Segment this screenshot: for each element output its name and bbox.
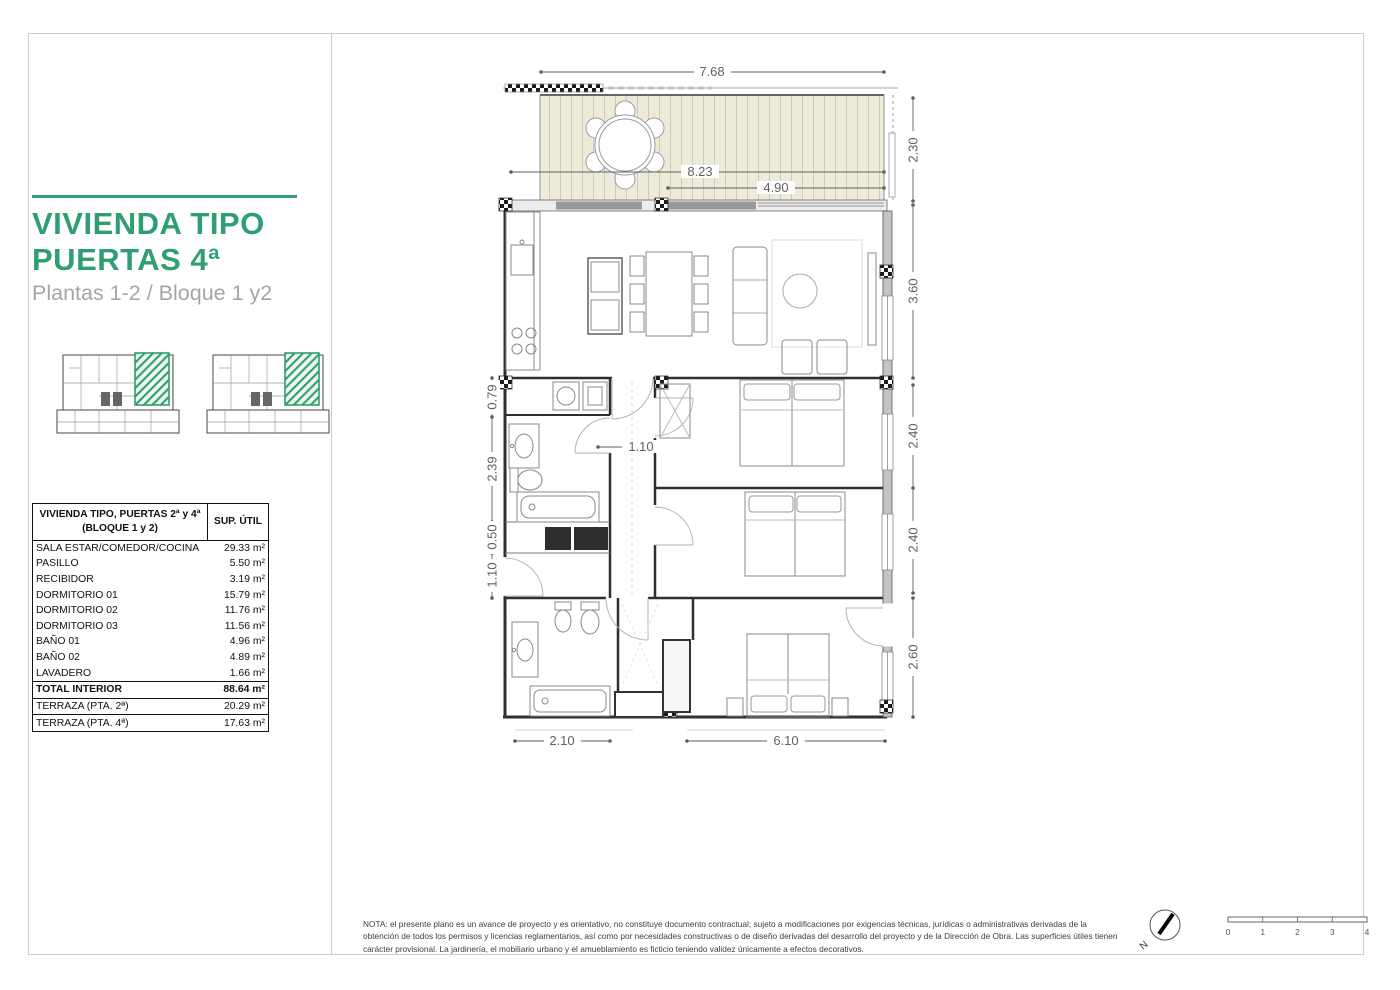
table-row: LAVADERO1.66 m² [33, 665, 268, 681]
table-header-sup-util: SUP. ÚTIL [208, 504, 268, 540]
dim-hallway: 1.10 [596, 439, 658, 454]
key-plan-block-1 [57, 353, 179, 433]
scale-tick: 0 [1226, 927, 1231, 937]
dim-label: 2.39 [485, 456, 500, 481]
scale-tick: 3 [1330, 927, 1335, 937]
room-area: 29.33 m² [201, 543, 268, 554]
room-area: 4.96 m² [201, 636, 268, 647]
table-header-title: VIVIENDA TIPO, PUERTAS 2ª y 4ª (BLOQUE 1… [33, 504, 208, 540]
room-area: 15.79 m² [201, 590, 268, 601]
laundry-appliances [553, 382, 607, 410]
total-label: TOTAL INTERIOR [33, 684, 201, 695]
page-title: VIVIENDA TIPO PUERTAS 4ª [32, 206, 322, 279]
dim-label: 2.10 [549, 733, 574, 748]
table-header: VIVIENDA TIPO, PUERTAS 2ª y 4ª (BLOQUE 1… [33, 504, 268, 541]
kitchen-furniture [506, 212, 622, 370]
legal-note: NOTA: el presente plano es un avance de … [363, 918, 1121, 955]
dim-label: 4.90 [763, 180, 788, 195]
table-row: PASILLO5.50 m² [33, 556, 268, 572]
eave-lines [503, 84, 898, 92]
dim-label: 0.50 [485, 524, 500, 549]
sidebar-divider [331, 33, 332, 955]
room-label: DORMITORIO 03 [33, 621, 201, 632]
bedroom02-furniture [660, 380, 844, 466]
key-plan-icon [55, 348, 335, 448]
scale-tick: 1 [1260, 927, 1265, 937]
room-label: BAÑO 01 [33, 636, 201, 647]
title-line-1: VIVIENDA TIPO [32, 206, 322, 242]
room-area: 3.19 m² [201, 574, 268, 585]
table-row-terraza-4: TERRAZA (PTA. 4ª)17.63 m² [33, 714, 268, 731]
surfaces-table: VIVIENDA TIPO, PUERTAS 2ª y 4ª (BLOQUE 1… [32, 503, 269, 732]
table-row-terraza-2: TERRAZA (PTA. 2ª)20.29 m² [33, 699, 268, 715]
room-area: 11.56 m² [201, 621, 268, 632]
terrace [540, 95, 895, 201]
scale-tick: 4 [1365, 927, 1370, 937]
table-header-line1: VIVIENDA TIPO, PUERTAS 2ª y 4ª [35, 508, 205, 522]
room-label: BAÑO 02 [33, 652, 201, 663]
dressing-closets [615, 604, 690, 717]
dim-label: 2.30 [906, 137, 921, 162]
right-facade [882, 211, 893, 717]
room-label: PASILLO [33, 558, 201, 569]
dim-label: 6.10 [773, 733, 798, 748]
table-row-total: TOTAL INTERIOR88.64 m² [33, 681, 268, 699]
terrace-label: TERRAZA (PTA. 2ª) [33, 701, 201, 712]
plan-sheet: VIVIENDA TIPO PUERTAS 4ª Plantas 1-2 / B… [0, 0, 1400, 990]
bathroom1-fixtures [509, 424, 608, 550]
dim-label: 7.68 [699, 64, 724, 79]
accent-rule [32, 195, 297, 198]
dim-top: 7.68 [539, 64, 886, 79]
room-label: DORMITORIO 01 [33, 590, 201, 601]
dim-label: 1.10 [628, 439, 653, 454]
total-area: 88.64 m² [201, 684, 268, 695]
window-band-top [503, 200, 887, 211]
bedroom01-furniture [727, 634, 848, 717]
room-area: 1.66 m² [201, 668, 268, 679]
key-plan-block-2 [207, 353, 329, 433]
terrace-area: 20.29 m² [201, 701, 268, 712]
table-row: SALA ESTAR/COMEDOR/COCINA29.33 m² [33, 541, 268, 557]
dim-label: 2.40 [906, 527, 921, 552]
room-label: RECIBIDOR [33, 574, 201, 585]
table-row: DORMITORIO 0115.79 m² [33, 587, 268, 603]
table-row: BAÑO 014.96 m² [33, 634, 268, 650]
scale-bar: 0 1 2 3 4 [1222, 905, 1377, 947]
dim-label: 2.40 [906, 423, 921, 448]
room-label: LAVADERO [33, 668, 201, 679]
title-line-2: PUERTAS 4ª [32, 242, 322, 278]
dims-bottom: 2.10 6.10 [513, 730, 887, 748]
scale-tick: 2 [1295, 927, 1300, 937]
table-row: RECIBIDOR3.19 m² [33, 572, 268, 588]
room-area: 5.50 m² [201, 558, 268, 569]
table-row: DORMITORIO 0211.76 m² [33, 603, 268, 619]
table-row: DORMITORIO 0311.56 m² [33, 619, 268, 635]
dim-label: 2.60 [906, 644, 921, 669]
dim-label: 8.23 [687, 164, 712, 179]
room-area: 4.89 m² [201, 652, 268, 663]
dim-label: 1.10 [485, 562, 500, 587]
room-label: SALA ESTAR/COMEDOR/COCINA [33, 543, 201, 554]
terrace-area: 17.63 m² [201, 718, 268, 729]
north-arrow-icon: N [1135, 898, 1205, 964]
page-subtitle: Plantas 1-2 / Bloque 1 y2 [32, 281, 272, 306]
dim-label: 0.79 [485, 384, 500, 409]
room-area: 11.76 m² [201, 605, 268, 616]
living-furniture [733, 240, 876, 374]
north-label: N [1138, 939, 1151, 952]
bedroom03-furniture [745, 492, 845, 576]
table-header-line2: (BLOQUE 1 y 2) [35, 522, 205, 536]
dims-left: 0.79 2.39 0.50 1.10 [484, 376, 500, 600]
room-label: DORMITORIO 02 [33, 605, 201, 616]
dims-right: 2.30 3.60 2.40 2.40 2.60 [905, 96, 921, 719]
table-row: BAÑO 024.89 m² [33, 650, 268, 666]
dining-furniture [630, 252, 708, 336]
terrace-label: TERRAZA (PTA. 4ª) [33, 718, 201, 729]
dim-label: 3.60 [906, 278, 921, 303]
bathroom2-fixtures [512, 602, 610, 716]
floor-plan-drawing: 7.68 8.23 4.90 [455, 55, 955, 765]
